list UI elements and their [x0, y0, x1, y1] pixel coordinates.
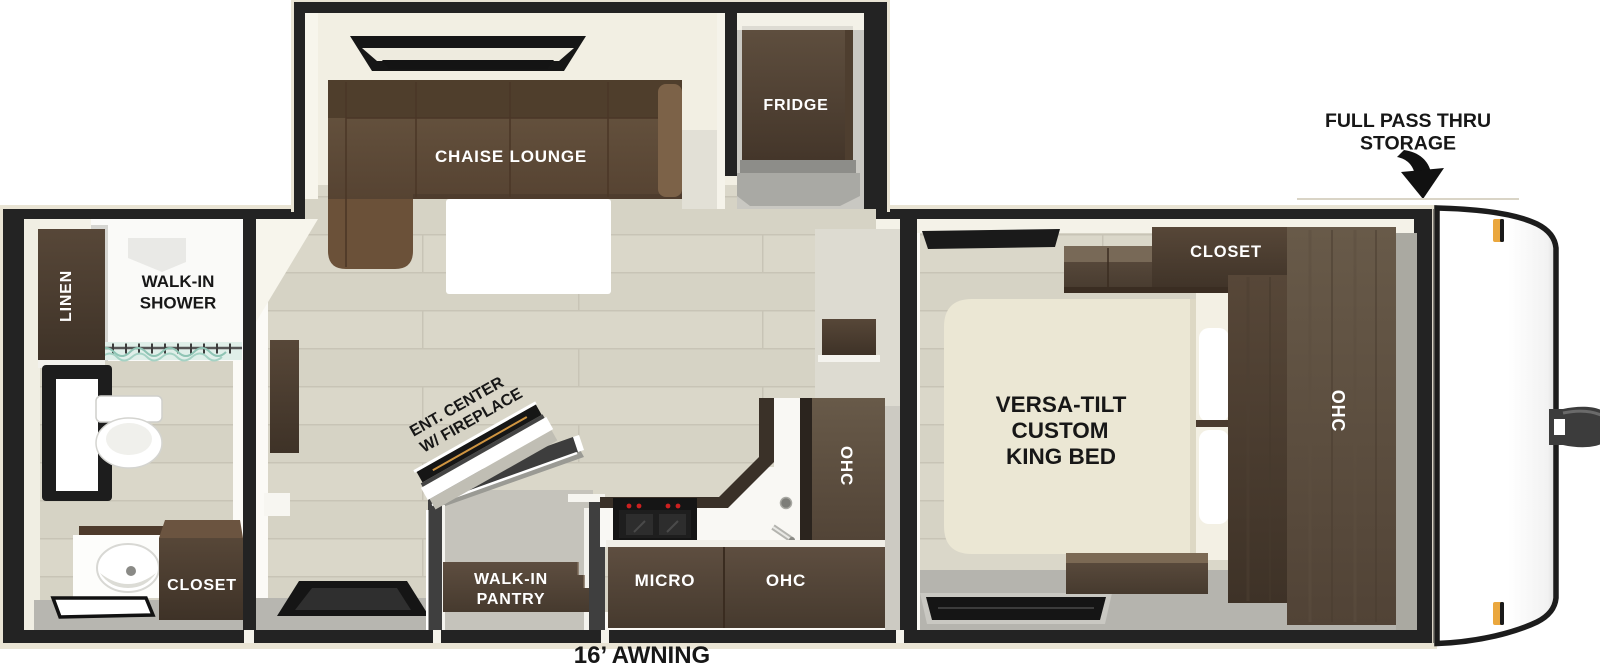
svg-text:PANTRY: PANTRY: [477, 591, 546, 608]
svg-text:KING BED: KING BED: [1006, 444, 1116, 469]
svg-text:FRIDGE: FRIDGE: [763, 97, 828, 114]
svg-text:WALK-IN: WALK-IN: [142, 272, 215, 291]
svg-text:WALK-IN: WALK-IN: [474, 571, 548, 588]
svg-text:SHOWER: SHOWER: [140, 294, 217, 313]
svg-text:FULL PASS THRU: FULL PASS THRU: [1325, 110, 1491, 132]
svg-text:OHC: OHC: [766, 571, 806, 590]
svg-text:MICRO: MICRO: [635, 571, 696, 590]
svg-text:16’ AWNING: 16’ AWNING: [574, 642, 710, 666]
svg-text:OHC: OHC: [837, 446, 856, 486]
svg-text:CLOSET: CLOSET: [1190, 243, 1262, 261]
svg-text:OHC: OHC: [1328, 390, 1348, 432]
svg-text:LINEN: LINEN: [58, 270, 75, 322]
svg-text:CHAISE LOUNGE: CHAISE LOUNGE: [435, 147, 587, 166]
svg-text:VERSA-TILT: VERSA-TILT: [996, 392, 1127, 417]
svg-text:CUSTOM: CUSTOM: [1011, 418, 1108, 443]
svg-text:CLOSET: CLOSET: [167, 577, 237, 594]
